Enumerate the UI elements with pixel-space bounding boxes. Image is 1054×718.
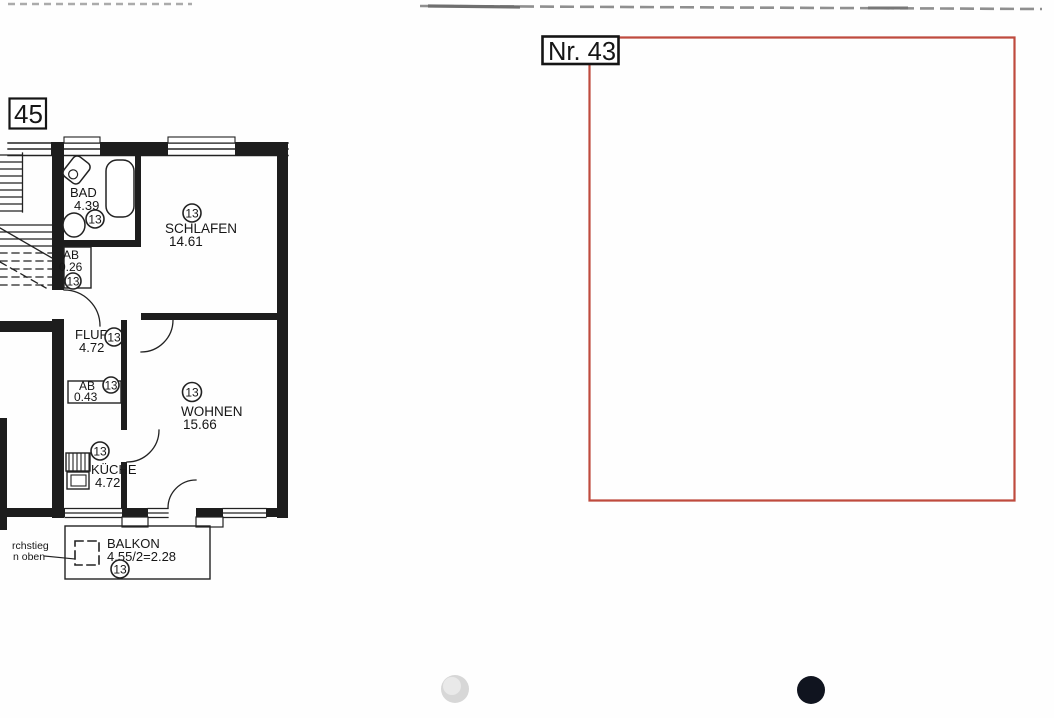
svg-text:45: 45 (14, 99, 43, 129)
svg-text:15.66: 15.66 (183, 417, 217, 432)
svg-text:14.61: 14.61 (169, 234, 203, 249)
svg-text:13: 13 (105, 381, 118, 393)
svg-text:13: 13 (107, 331, 121, 345)
svg-text:13: 13 (185, 386, 199, 400)
svg-text:4.72: 4.72 (95, 475, 120, 490)
svg-text:Nr. 43: Nr. 43 (548, 38, 616, 66)
svg-text:13: 13 (185, 207, 199, 221)
svg-text:13: 13 (67, 277, 80, 289)
svg-text:13: 13 (113, 563, 127, 577)
svg-text:13: 13 (88, 213, 102, 227)
svg-text:0.26: 0.26 (59, 260, 83, 274)
svg-text:n oben: n oben (13, 551, 45, 563)
svg-text:0.43: 0.43 (74, 390, 98, 404)
svg-text:4.72: 4.72 (79, 340, 104, 355)
svg-text:13: 13 (93, 445, 107, 459)
